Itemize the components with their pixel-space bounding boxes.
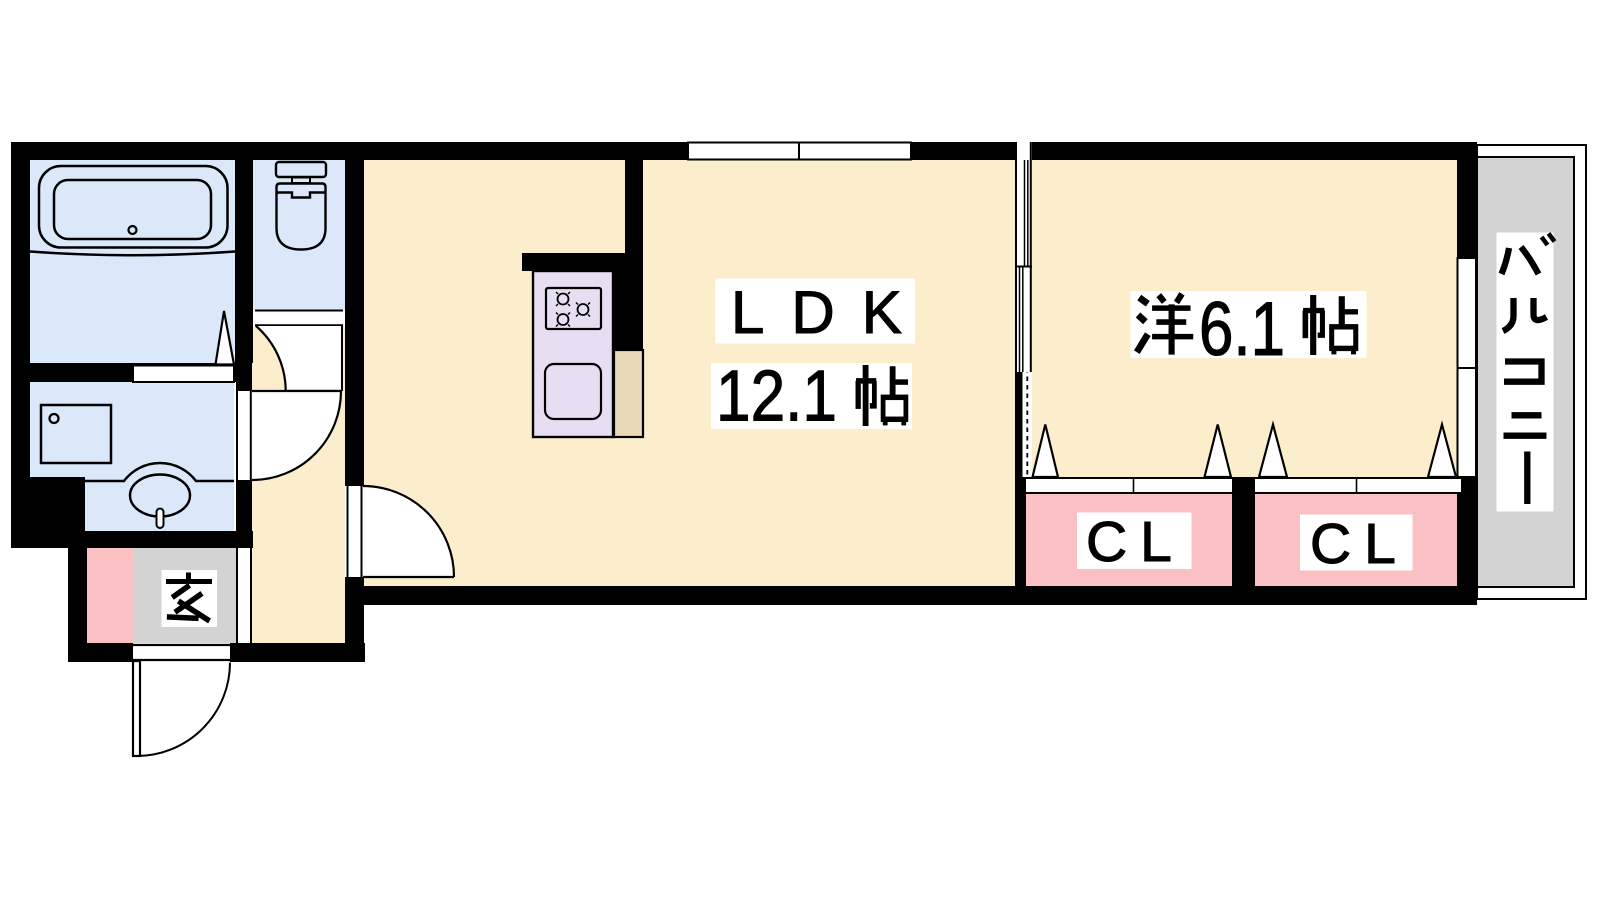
svg-text:6.1: 6.1 — [1199, 287, 1285, 372]
svg-text:CL: CL — [1310, 512, 1409, 576]
svg-text:CL: CL — [1086, 510, 1185, 574]
svg-text:LDK: LDK — [731, 279, 929, 346]
svg-text:12.1: 12.1 — [716, 357, 837, 437]
